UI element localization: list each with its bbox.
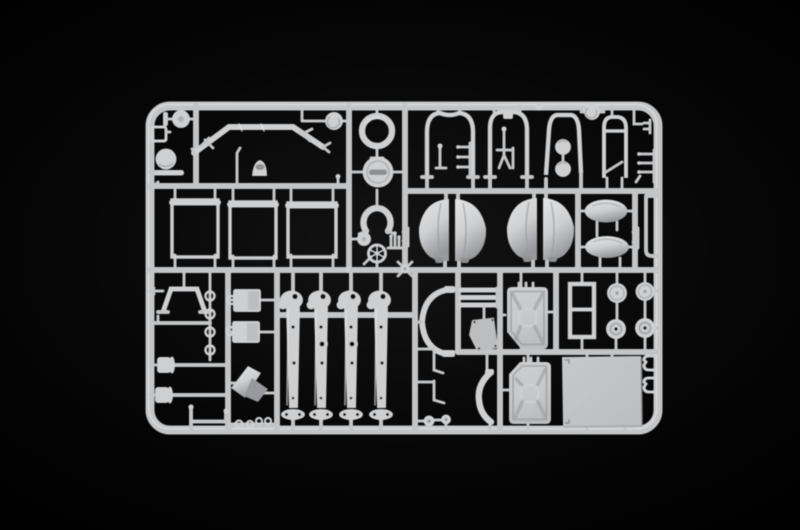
towing-horseshoe	[359, 190, 395, 234]
floor-panel	[562, 352, 642, 430]
window-frame-2	[230, 202, 276, 258]
fork-leg-2	[307, 291, 334, 421]
a-frame-brace	[497, 126, 513, 168]
stand-bracket	[150, 270, 210, 312]
parts-arches	[422, 104, 654, 191]
spare-tyre-ring	[362, 106, 392, 158]
gear-lever	[237, 148, 240, 186]
headlight-shell-lower	[578, 236, 635, 270]
parts-center-column	[349, 106, 408, 270]
parts-bottom-left	[150, 270, 277, 430]
window-frame-3	[288, 203, 336, 257]
mudguard-arc	[479, 352, 494, 430]
engine-block-1	[228, 289, 278, 312]
windscreen-arc	[415, 286, 455, 357]
twin-lamps	[555, 139, 571, 177]
fender-shell-pair-2	[507, 198, 574, 262]
jerry-can-2	[500, 352, 551, 430]
wheel-disc	[163, 110, 196, 128]
parts-fender-band	[419, 191, 658, 270]
fender-shell-pair-1	[419, 199, 486, 263]
fork-leg-4	[367, 291, 394, 421]
parts-fork-legs	[279, 270, 394, 430]
fork-leg-1	[279, 291, 306, 421]
headlight-shell-upper	[578, 200, 635, 237]
seat-plate	[469, 305, 498, 352]
pin-bracket	[636, 150, 654, 182]
steering-wheel	[364, 245, 386, 270]
leaf-spring-stack	[460, 288, 500, 307]
axle-hub-1	[152, 357, 228, 374]
hub-cap-disc	[352, 232, 371, 246]
tie-rod	[152, 316, 210, 323]
fuel-tank-outline	[604, 106, 626, 191]
road-wheel-1	[607, 270, 627, 319]
axle-hub-2	[150, 387, 228, 404]
hook-pin	[436, 143, 446, 168]
funnel-horn	[228, 366, 277, 402]
drum-disc	[150, 149, 184, 176]
sprue-photo	[0, 0, 800, 530]
jerry-can-1	[500, 270, 556, 352]
sprue-illustration	[0, 0, 800, 530]
wheel-hub-1	[606, 319, 626, 352]
window-frames-left	[172, 190, 336, 270]
storage-box-bracket	[152, 127, 170, 141]
headlamp-cover-disc	[349, 157, 405, 188]
angle-rod-2	[415, 381, 444, 403]
engine-block-2	[227, 321, 278, 343]
front-bumper-bar	[192, 124, 330, 157]
window-frame-1	[172, 200, 218, 257]
parts-top-left	[150, 106, 349, 190]
fork-leg-3	[337, 291, 364, 421]
rung-bracket	[456, 143, 470, 175]
window-frame-4	[570, 270, 594, 352]
seat-saddle	[252, 160, 267, 176]
eyelet-chain	[206, 272, 215, 360]
